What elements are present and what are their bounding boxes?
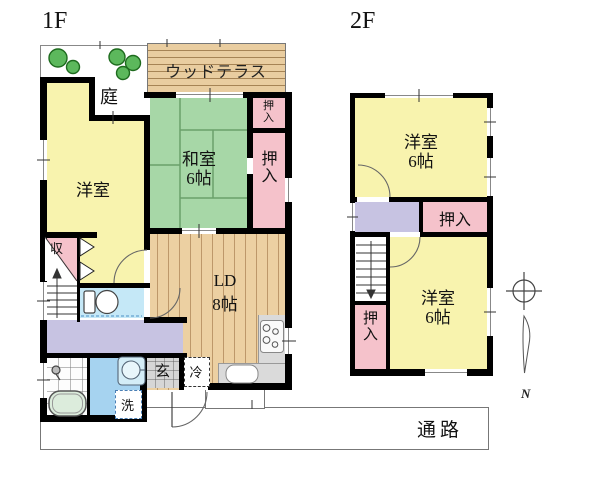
window-line <box>490 158 491 196</box>
floor2-label: 2F <box>350 8 375 35</box>
label-western-1f: 洋室 <box>55 176 131 201</box>
wall <box>144 115 150 235</box>
window-line <box>43 363 44 398</box>
wall <box>208 383 292 390</box>
door-opening <box>357 197 389 202</box>
window-line <box>288 178 289 202</box>
wall <box>247 128 287 133</box>
wall <box>40 77 95 83</box>
room-western-1f-lower <box>77 232 148 288</box>
label-ld-size: 8帖 <box>195 290 255 315</box>
window-gap <box>176 92 243 98</box>
label-western-2f-north-size: 6帖 <box>390 147 452 172</box>
window-line <box>43 140 44 180</box>
label-closet-2f-south: 押入 <box>362 312 379 344</box>
garden-area-top <box>40 45 149 79</box>
wall <box>77 235 80 322</box>
compass-icon <box>506 272 542 373</box>
door-opening <box>390 232 420 237</box>
window-line <box>490 108 491 136</box>
wall <box>386 237 390 370</box>
wall <box>144 317 187 323</box>
label-closet-lower: 押入 <box>261 152 278 186</box>
label-passage: 通路 <box>403 415 477 442</box>
wall <box>40 232 97 238</box>
wall <box>350 369 493 376</box>
door-opening <box>144 288 150 317</box>
window-line <box>288 328 289 354</box>
door-opening <box>247 158 253 174</box>
label-entrance: 玄 <box>155 360 170 381</box>
label-garden: 庭 <box>100 83 118 109</box>
window-line <box>176 94 243 95</box>
wall <box>89 115 147 121</box>
wall <box>87 358 90 415</box>
window-line <box>352 203 353 231</box>
wall <box>350 232 493 237</box>
window-gap <box>182 228 216 234</box>
label-laundry: 洗 <box>115 395 140 414</box>
label-closet-upper: 押入 <box>262 101 275 124</box>
corridor-1f <box>42 320 183 353</box>
wall <box>352 301 387 305</box>
toilet-room <box>80 288 144 318</box>
corridor-2f <box>355 200 420 233</box>
wall <box>144 228 292 234</box>
window-line <box>490 288 491 336</box>
window-line <box>43 282 44 320</box>
wall <box>419 200 423 234</box>
label-japanese-size: 6帖 <box>169 164 229 189</box>
floor1-label: 1F <box>42 8 67 35</box>
wall <box>40 353 147 358</box>
label-western-2f-south-size: 6帖 <box>407 303 469 328</box>
window-line <box>385 95 453 96</box>
label-closet-2f-north: 押入 <box>425 206 485 230</box>
wall <box>77 283 148 288</box>
entrance-porch <box>205 388 265 409</box>
label-terrace: ウッドテラス <box>150 58 282 82</box>
bathroom <box>47 358 87 415</box>
window-line <box>182 230 216 231</box>
door-opening <box>144 250 150 283</box>
label-fridge: 冷 <box>184 362 208 381</box>
stairs-2f <box>356 241 386 298</box>
north-mark: N <box>521 386 530 402</box>
label-storage: 収 <box>50 238 63 257</box>
window-line <box>425 372 467 373</box>
label-ld: LD <box>195 271 255 291</box>
floorplan-canvas: 1F 2F 庭 ウッドテラス 洋室 和室 6帖 押入 押入 収 LD 8帖 玄 … <box>0 0 600 488</box>
